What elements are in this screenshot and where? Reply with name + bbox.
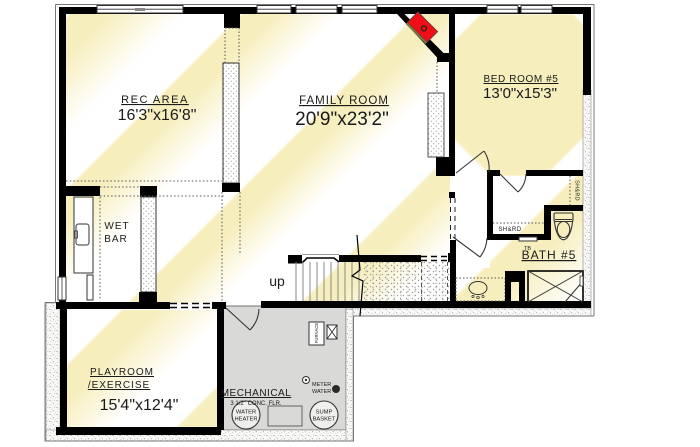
svg-text:SUMP: SUMP — [316, 410, 333, 416]
svg-text:BED ROOM #5: BED ROOM #5 — [484, 74, 559, 85]
svg-text:FURNACE: FURNACE — [314, 323, 319, 343]
svg-text:SH&RD: SH&RD — [498, 227, 521, 233]
svg-text:13'0"x15'3": 13'0"x15'3" — [483, 85, 557, 102]
svg-text:20'9"x23'2": 20'9"x23'2" — [295, 109, 389, 130]
svg-text:WET: WET — [104, 221, 129, 232]
svg-text:WATER: WATER — [312, 389, 331, 395]
svg-text:16'3"x16'8": 16'3"x16'8" — [118, 107, 197, 124]
svg-text:METER: METER — [312, 382, 331, 388]
svg-text:BAR: BAR — [104, 234, 128, 245]
svg-text:PLAYROOM: PLAYROOM — [90, 367, 154, 378]
svg-text:WATER: WATER — [236, 410, 256, 416]
svg-text:up: up — [269, 273, 285, 289]
svg-text:15'4"x12'4": 15'4"x12'4" — [100, 397, 179, 414]
svg-text:REC AREA: REC AREA — [121, 94, 189, 106]
svg-text:HEATER: HEATER — [234, 417, 257, 423]
svg-text:SH&RD: SH&RD — [574, 180, 580, 201]
svg-text:BASKET: BASKET — [313, 417, 336, 423]
svg-text:FAMILY ROOM: FAMILY ROOM — [299, 95, 389, 107]
svg-text:/EXERCISE: /EXERCISE — [88, 380, 150, 391]
svg-text:BATH #5: BATH #5 — [522, 248, 577, 262]
svg-text:3 1/2" CONC. FLR.: 3 1/2" CONC. FLR. — [230, 401, 281, 407]
svg-text:MECHANICAL: MECHANICAL — [221, 388, 292, 399]
